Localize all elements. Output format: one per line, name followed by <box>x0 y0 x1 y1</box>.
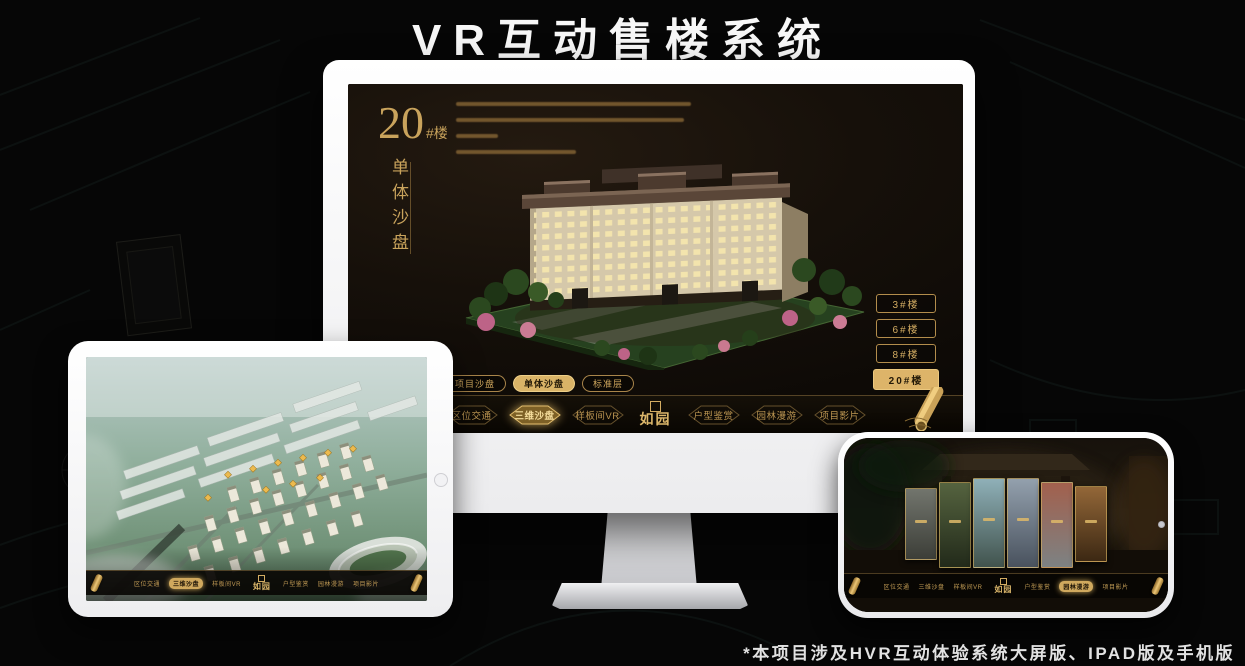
nav-item-model-room-vr[interactable]: 样板间VR <box>569 403 627 427</box>
nav-item-garden-roam[interactable]: 园林漫游 <box>1059 581 1093 592</box>
nav-item-3d-sandbox[interactable]: 三维沙盘 <box>506 403 564 427</box>
nav-item-garden-roam[interactable]: 园林漫游 <box>318 579 344 588</box>
scroll-handle-icon[interactable] <box>901 387 955 431</box>
nav-label: 项目影片 <box>819 408 859 422</box>
brand-logo[interactable]: 如园 <box>253 575 271 591</box>
nav-item-location[interactable]: 区位交通 <box>884 582 910 591</box>
gallery-panel[interactable] <box>905 488 937 560</box>
building-selector: 3#楼 6#楼 8#楼 20#楼 <box>873 294 939 390</box>
aerial-masterplan-illustration <box>86 357 427 601</box>
nav-item-location[interactable]: 区位交通 <box>134 579 160 588</box>
tablet-screen: 项目沙盘 单体沙盘 标准层 区位交通 三维沙盘 样板间VR 如园 户型鉴赏 园林… <box>86 357 427 601</box>
view-tabs: 项目沙盘 单体沙盘 标准层 <box>444 375 634 392</box>
building-button-8[interactable]: 8#楼 <box>876 344 936 363</box>
building-model-illustration <box>452 142 877 370</box>
gallery-panel[interactable] <box>1041 482 1073 568</box>
nav-label: 三维沙盘 <box>514 408 554 422</box>
nav-item-garden-roam[interactable]: 园林漫游 <box>748 403 806 427</box>
nav-item-floorplans[interactable]: 户型鉴赏 <box>685 403 743 427</box>
nav-item-3d-sandbox[interactable]: 三维沙盘 <box>169 578 203 589</box>
nav-item-project-film[interactable]: 项目影片 <box>353 579 379 588</box>
nav-label: 区位交通 <box>451 408 491 422</box>
nav-item-project-film[interactable]: 项目影片 <box>1102 582 1128 591</box>
nav-item-model-room-vr[interactable]: 样板间VR <box>954 582 983 591</box>
tab-project-sandbox[interactable]: 项目沙盘 <box>444 375 506 392</box>
tablet-navbar: 区位交通 三维沙盘 样板间VR 如园 户型鉴赏 园林漫游 项目影片 <box>86 570 427 595</box>
gallery-panel[interactable] <box>1075 486 1107 562</box>
building-heading: 20#楼 <box>378 100 448 146</box>
building-number: 20 <box>378 97 424 148</box>
nav-label: 园林漫游 <box>756 408 796 422</box>
building-button-3[interactable]: 3#楼 <box>876 294 936 313</box>
scroll-handle-icon[interactable] <box>848 576 862 595</box>
seal-icon <box>258 575 265 582</box>
nav-item-3d-sandbox[interactable]: 三维沙盘 <box>919 582 945 591</box>
tab-single-sandbox[interactable]: 单体沙盘 <box>513 375 575 392</box>
brand-logo-text: 如园 <box>994 586 1012 594</box>
tablet-home-button[interactable] <box>434 473 448 487</box>
brand-logo-text: 如园 <box>253 583 271 591</box>
monitor-stand-base <box>552 583 748 609</box>
tab-standard-floor[interactable]: 标准层 <box>582 375 634 392</box>
nav-item-model-room-vr[interactable]: 样板间VR <box>212 579 241 588</box>
seal-icon <box>650 401 661 412</box>
brand-logo-text: 如园 <box>640 414 672 428</box>
gallery-panel[interactable] <box>939 482 971 568</box>
nav-label: 户型鉴赏 <box>693 408 733 422</box>
nav-item-floorplans[interactable]: 户型鉴赏 <box>1024 582 1050 591</box>
nav-item-floorplans[interactable]: 户型鉴赏 <box>283 579 309 588</box>
page-title: VR互动售楼系统 <box>0 4 1245 68</box>
scroll-handle-icon[interactable] <box>1151 576 1165 595</box>
brand-logo[interactable]: 如园 <box>640 401 672 428</box>
seal-icon <box>1000 578 1007 585</box>
phone-navbar: 区位交通 三维沙盘 样板间VR 如园 户型鉴赏 园林漫游 项目影片 <box>844 573 1168 598</box>
nav-item-project-film[interactable]: 项目影片 <box>811 403 869 427</box>
scroll-handle-icon[interactable] <box>410 573 424 592</box>
gallery-panel[interactable] <box>973 478 1005 568</box>
building-button-6[interactable]: 6#楼 <box>876 319 936 338</box>
scroll-handle-icon[interactable] <box>90 573 104 592</box>
phone-screen: 区位交通 三维沙盘 样板间VR 如园 户型鉴赏 园林漫游 项目影片 <box>844 438 1168 612</box>
building-number-suffix: #楼 <box>426 125 448 141</box>
phone-camera-dot <box>1158 521 1165 528</box>
monitor-stand-neck <box>601 511 697 589</box>
footnote: *本项目涉及HVR互动体验系统大屏版、IPAD版及手机版 <box>743 639 1235 664</box>
gallery-panel[interactable] <box>1007 478 1039 568</box>
brand-logo[interactable]: 如园 <box>994 578 1012 594</box>
building-vertical-label: 单体沙盘 <box>386 158 411 258</box>
nav-label: 样板间VR <box>575 408 619 422</box>
